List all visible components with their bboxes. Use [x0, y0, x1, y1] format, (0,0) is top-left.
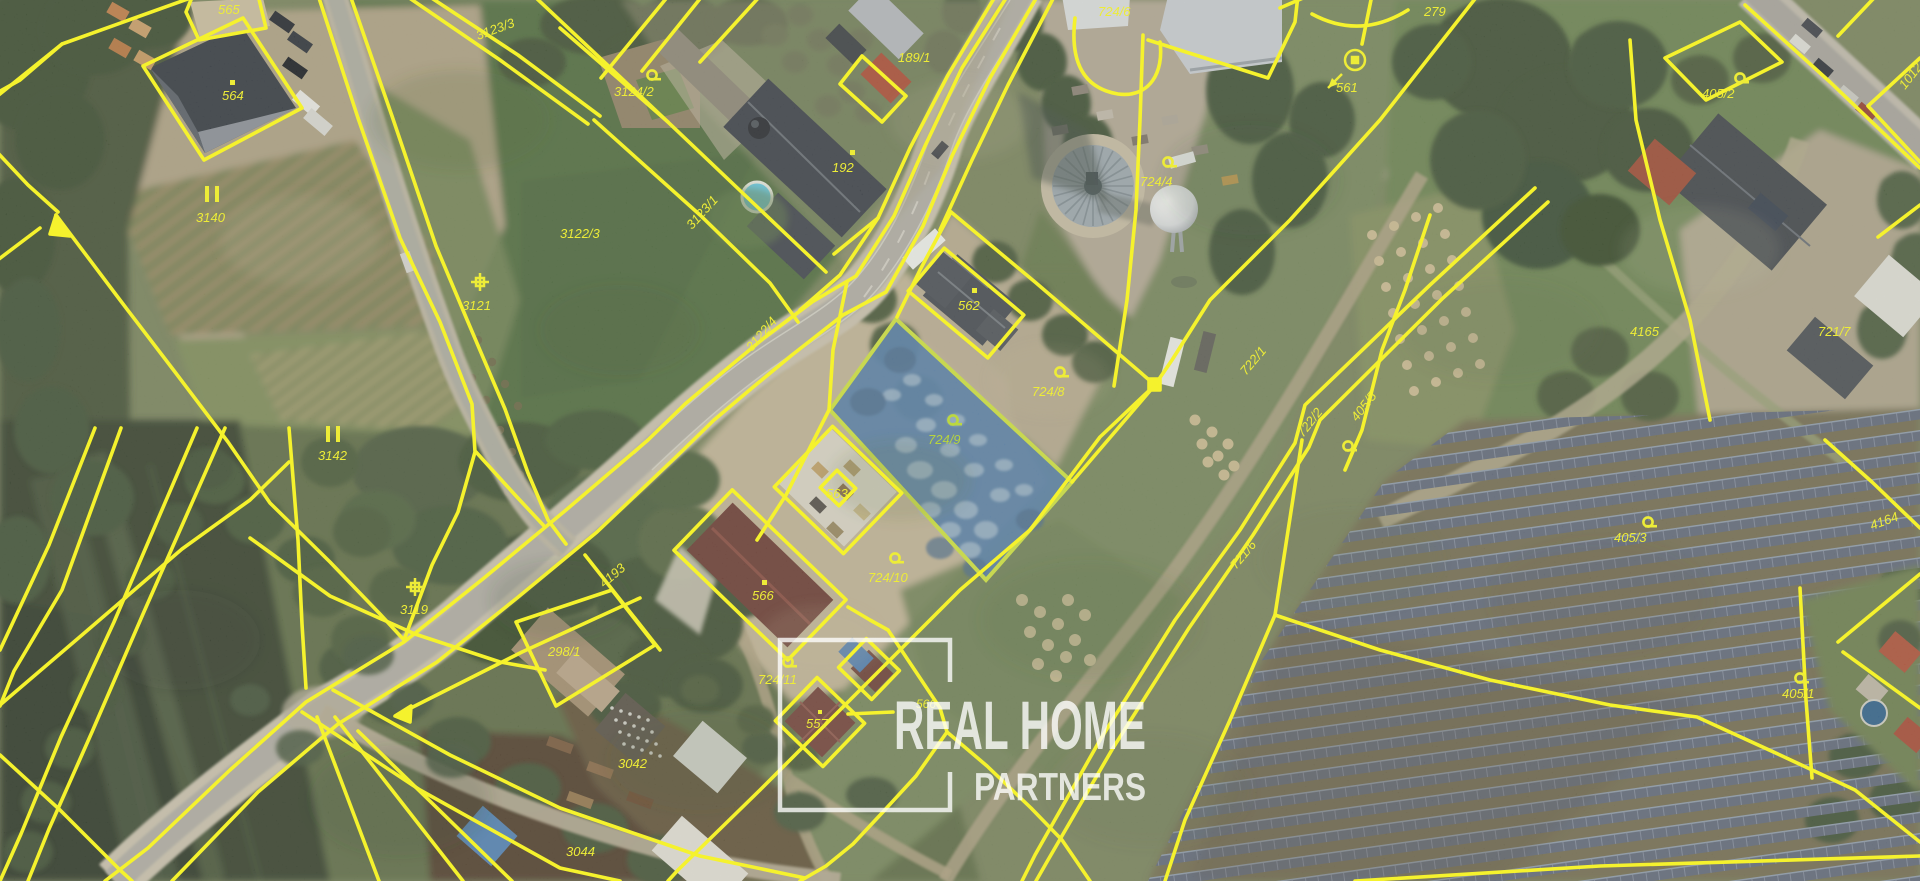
svg-text:298/1: 298/1	[547, 644, 581, 659]
svg-text:PARTNERS: PARTNERS	[974, 766, 1146, 809]
svg-text:3042: 3042	[618, 756, 648, 771]
svg-text:561: 561	[1336, 80, 1358, 95]
svg-text:3142: 3142	[318, 448, 348, 463]
svg-text:405/2: 405/2	[1702, 86, 1735, 101]
svg-text:REAL HOME: REAL HOME	[894, 687, 1146, 764]
svg-text:564: 564	[222, 88, 244, 103]
svg-text:724/11: 724/11	[758, 672, 797, 687]
svg-text:4165: 4165	[1630, 324, 1660, 339]
svg-text:3121: 3121	[462, 298, 491, 313]
svg-text:3119: 3119	[400, 602, 428, 617]
svg-text:3122/3: 3122/3	[560, 226, 601, 241]
svg-text:405/3: 405/3	[1614, 530, 1647, 545]
svg-text:3044: 3044	[566, 844, 595, 859]
svg-text:192: 192	[832, 160, 854, 175]
svg-text:565: 565	[218, 2, 240, 17]
svg-text:724/4: 724/4	[1140, 174, 1173, 189]
svg-text:566: 566	[752, 588, 774, 603]
svg-text:3140: 3140	[196, 210, 226, 225]
svg-text:189/1: 189/1	[898, 50, 931, 65]
svg-text:279: 279	[1423, 4, 1446, 19]
svg-text:405/1: 405/1	[1782, 686, 1815, 701]
svg-text:724/8: 724/8	[1032, 384, 1065, 399]
svg-text:3124/2: 3124/2	[614, 84, 655, 99]
svg-text:557: 557	[806, 716, 828, 731]
svg-text:563: 563	[826, 486, 848, 501]
svg-text:724/9: 724/9	[928, 432, 961, 447]
svg-text:724/10: 724/10	[868, 570, 909, 585]
svg-text:721/7: 721/7	[1818, 324, 1851, 339]
svg-text:562: 562	[958, 298, 980, 313]
svg-text:724/6: 724/6	[1098, 4, 1131, 19]
